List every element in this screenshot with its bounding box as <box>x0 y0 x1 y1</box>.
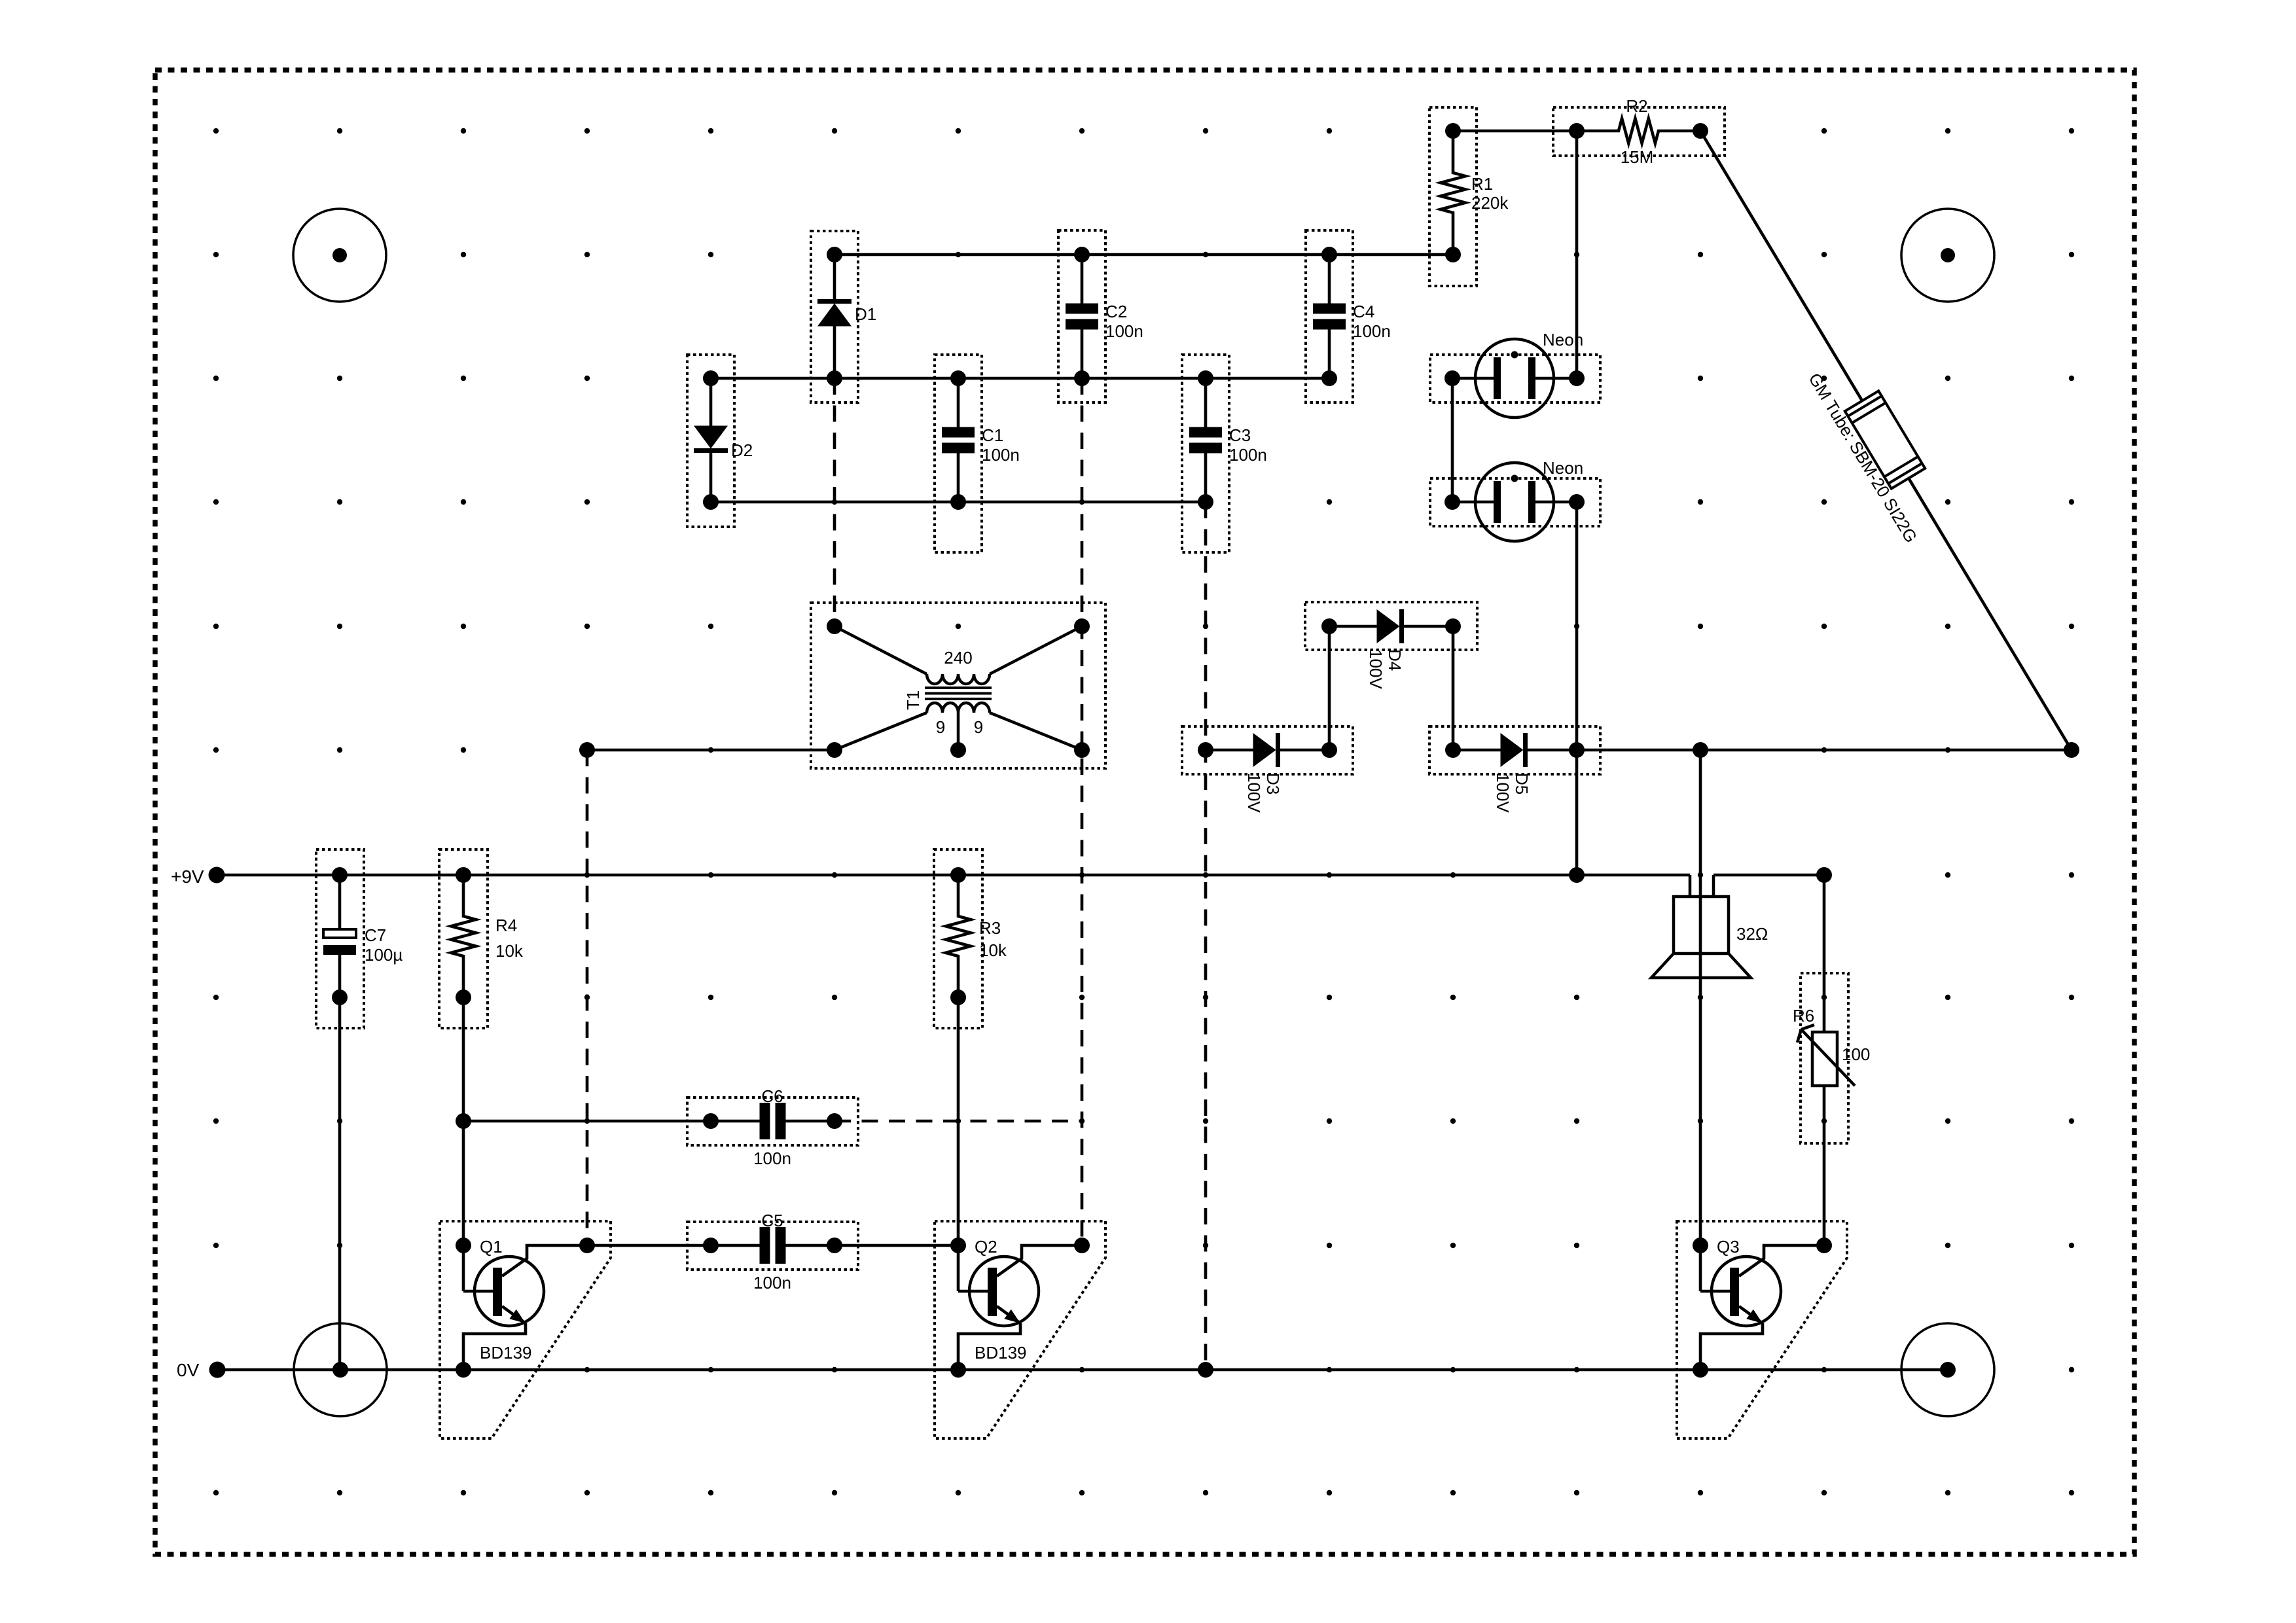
svg-text:9: 9 <box>936 717 945 737</box>
svg-text:C6: C6 <box>761 1086 783 1106</box>
svg-text:D1: D1 <box>855 304 876 324</box>
svg-text:D4: D4 <box>1385 649 1405 671</box>
svg-text:C4: C4 <box>1353 302 1374 321</box>
svg-text:100n: 100n <box>1353 321 1391 341</box>
svg-text:R4: R4 <box>495 916 517 935</box>
svg-text:100µ: 100µ <box>365 945 403 965</box>
svg-text:Neon: Neon <box>1543 330 1583 349</box>
svg-text:C3: C3 <box>1229 425 1251 445</box>
svg-text:C1: C1 <box>982 425 1003 445</box>
svg-text:10k: 10k <box>979 940 1007 960</box>
svg-text:100: 100 <box>1842 1044 1870 1064</box>
svg-text:C5: C5 <box>761 1211 783 1230</box>
svg-text:D2: D2 <box>731 440 753 460</box>
svg-text:240: 240 <box>944 648 972 668</box>
svg-text:100n: 100n <box>982 445 1020 465</box>
svg-text:BD139: BD139 <box>975 1343 1027 1363</box>
svg-text:R2: R2 <box>1626 96 1647 116</box>
svg-text:BD139: BD139 <box>480 1343 532 1363</box>
svg-text:10k: 10k <box>495 941 524 961</box>
svg-text:R6: R6 <box>1793 1006 1814 1026</box>
svg-text:C2: C2 <box>1105 302 1127 321</box>
svg-text:Q1: Q1 <box>480 1237 503 1257</box>
svg-text:220k: 220k <box>1471 193 1509 213</box>
svg-text:T1: T1 <box>903 690 923 710</box>
svg-text:100V: 100V <box>1366 649 1386 689</box>
svg-text:Neon: Neon <box>1543 458 1583 478</box>
svg-text:Q3: Q3 <box>1717 1237 1740 1257</box>
svg-text:C7: C7 <box>365 925 386 945</box>
svg-text:0V: 0V <box>177 1360 200 1380</box>
svg-text:100n: 100n <box>753 1273 791 1293</box>
svg-text:100V: 100V <box>1244 773 1264 813</box>
svg-text:R1: R1 <box>1471 174 1493 194</box>
svg-text:R3: R3 <box>979 918 1001 938</box>
svg-text:100n: 100n <box>1229 445 1267 465</box>
svg-text:32Ω: 32Ω <box>1736 924 1768 944</box>
svg-text:15M: 15M <box>1621 147 1654 167</box>
svg-text:100n: 100n <box>1105 321 1143 341</box>
svg-text:D5: D5 <box>1512 773 1532 794</box>
svg-text:100V: 100V <box>1493 773 1513 813</box>
svg-text:100n: 100n <box>753 1149 791 1168</box>
svg-text:9: 9 <box>974 717 983 737</box>
svg-text:D3: D3 <box>1263 773 1283 794</box>
svg-text:+9V: +9V <box>171 866 204 887</box>
svg-text:Q2: Q2 <box>975 1237 997 1257</box>
